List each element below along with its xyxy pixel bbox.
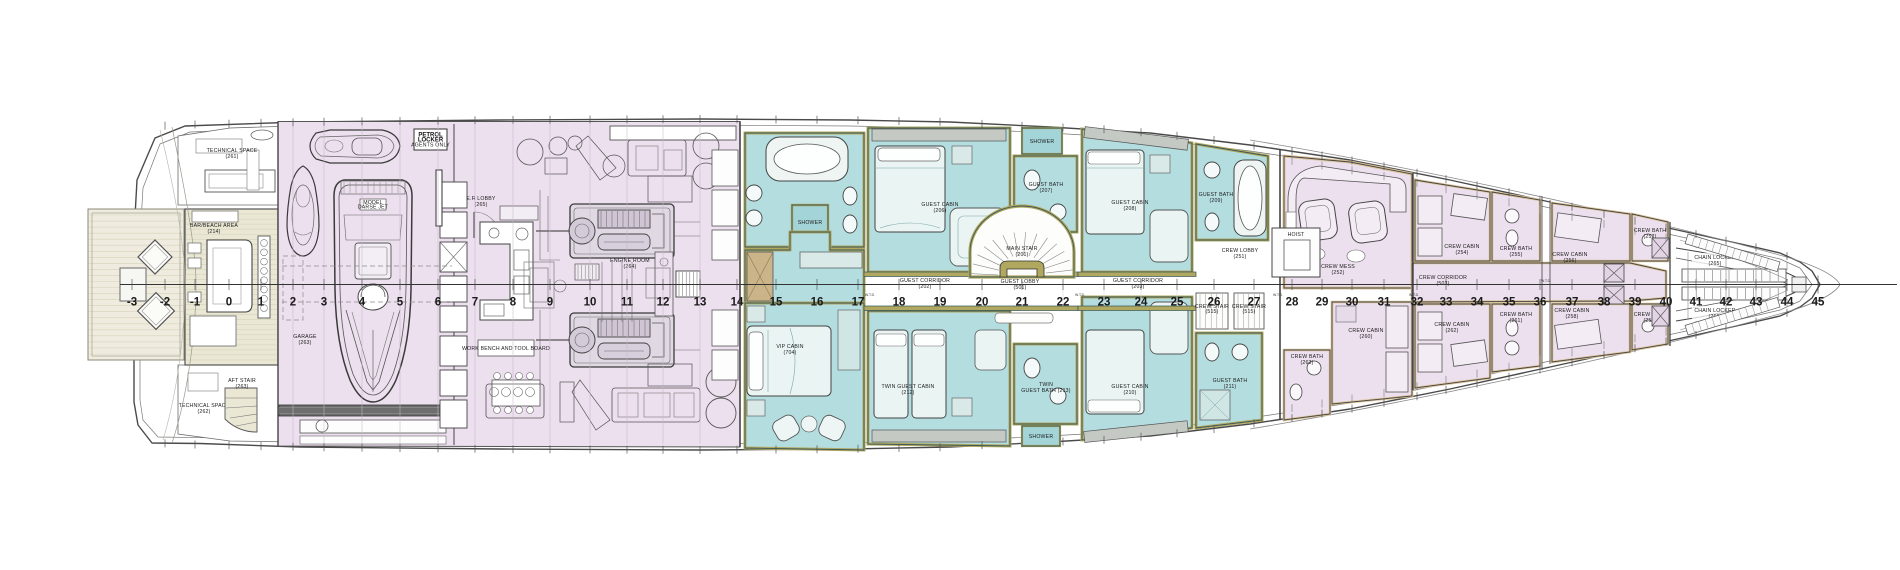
svg-text:W.T.D.: W.T.D. [1075,293,1085,297]
svg-text:SHOWER: SHOWER [1030,139,1055,145]
svg-text:4: 4 [359,297,366,309]
svg-text:(210): (210) [1123,390,1136,396]
svg-text:(211): (211) [1224,384,1237,390]
svg-text:20: 20 [976,297,989,309]
svg-text:26: 26 [1208,297,1221,309]
svg-text:22: 22 [1057,297,1070,309]
svg-text:(263): (263) [298,340,311,346]
svg-text:14: 14 [731,297,744,309]
svg-text:8: 8 [510,297,517,309]
svg-text:18: 18 [893,297,906,309]
svg-text:(254): (254) [1455,250,1468,256]
svg-text:W.T.D.: W.T.D. [1273,293,1283,297]
svg-text:(214): (214) [207,229,220,235]
svg-text:(262): (262) [197,409,210,415]
svg-text:(260): (260) [1359,334,1372,340]
svg-text:DARSE JET: DARSE JET [358,205,389,211]
svg-text:AGENTS ONLY: AGENTS ONLY [411,143,450,149]
svg-text:43: 43 [1750,297,1763,309]
svg-text:3: 3 [321,297,327,309]
svg-text:(704): (704) [783,350,796,356]
svg-text:23: 23 [1098,297,1111,309]
svg-text:(201): (201) [1015,252,1028,258]
svg-text:W.T.D.: W.T.D. [1541,279,1551,283]
svg-text:35: 35 [1503,297,1516,309]
svg-text:24: 24 [1135,297,1148,309]
svg-text:15: 15 [770,297,783,309]
svg-text:38: 38 [1598,297,1611,309]
svg-text:31: 31 [1378,297,1391,309]
svg-text:36: 36 [1534,297,1547,309]
svg-text:33: 33 [1440,297,1453,309]
svg-text:9: 9 [547,297,553,309]
svg-text:39: 39 [1629,297,1642,309]
svg-text:(261): (261) [1509,318,1522,324]
svg-text:44: 44 [1781,297,1794,309]
svg-text:19: 19 [934,297,947,309]
svg-text:(501): (501) [1013,285,1026,291]
svg-text:(258): (258) [1565,314,1578,320]
svg-text:W.T.D.: W.T.D. [865,293,875,297]
svg-text:12: 12 [657,297,670,309]
svg-text:(256): (256) [1563,258,1576,264]
svg-text:-1: -1 [190,297,201,309]
svg-text:30: 30 [1346,297,1359,309]
svg-text:(262): (262) [1445,328,1458,334]
svg-text:(252): (252) [1331,270,1344,276]
svg-text:(503): (503) [1436,281,1449,287]
svg-text:25: 25 [1171,297,1184,309]
svg-text:40: 40 [1660,297,1673,309]
svg-text:(264): (264) [623,264,636,270]
svg-text:(265): (265) [474,202,487,208]
svg-text:(255): (255) [1509,252,1522,258]
svg-text:(207): (207) [1039,188,1052,194]
svg-text:-2: -2 [160,297,170,309]
svg-text:11: 11 [621,297,634,309]
svg-text:5: 5 [397,297,404,309]
svg-text:-3: -3 [127,297,137,309]
svg-text:45: 45 [1812,297,1825,309]
svg-text:(208): (208) [1123,206,1136,212]
svg-text:SHOWER: SHOWER [798,220,823,226]
svg-text:27: 27 [1248,297,1261,309]
svg-text:1: 1 [258,297,265,309]
svg-text:SHOWER: SHOWER [1029,434,1054,440]
svg-text:21: 21 [1016,297,1029,309]
svg-text:13: 13 [694,297,707,309]
svg-text:6: 6 [435,297,441,309]
svg-text:28: 28 [1286,297,1299,309]
svg-text:41: 41 [1690,297,1703,309]
svg-text:(261): (261) [225,154,238,160]
svg-text:34: 34 [1471,297,1484,309]
svg-text:7: 7 [472,297,478,309]
svg-text:GUEST BATH (213): GUEST BATH (213) [1021,388,1070,394]
svg-text:29: 29 [1316,297,1329,309]
svg-text:(212): (212) [901,390,914,396]
svg-text:42: 42 [1720,297,1733,309]
svg-text:2: 2 [290,297,296,309]
svg-text:(206): (206) [933,208,946,214]
svg-text:(251): (251) [1233,254,1246,260]
svg-text:17: 17 [852,297,865,309]
svg-text:37: 37 [1566,297,1579,309]
svg-text:(209): (209) [1209,198,1222,204]
svg-text:10: 10 [584,297,597,309]
svg-text:(263): (263) [235,384,248,390]
svg-text:32: 32 [1411,297,1424,309]
svg-text:(515): (515) [1242,309,1255,315]
svg-text:0: 0 [226,297,232,309]
svg-text:(515): (515) [1205,309,1218,315]
svg-text:(265): (265) [1708,261,1721,267]
svg-text:(263): (263) [1300,360,1313,366]
svg-text:HOIST: HOIST [1288,232,1305,238]
svg-text:16: 16 [811,297,824,309]
